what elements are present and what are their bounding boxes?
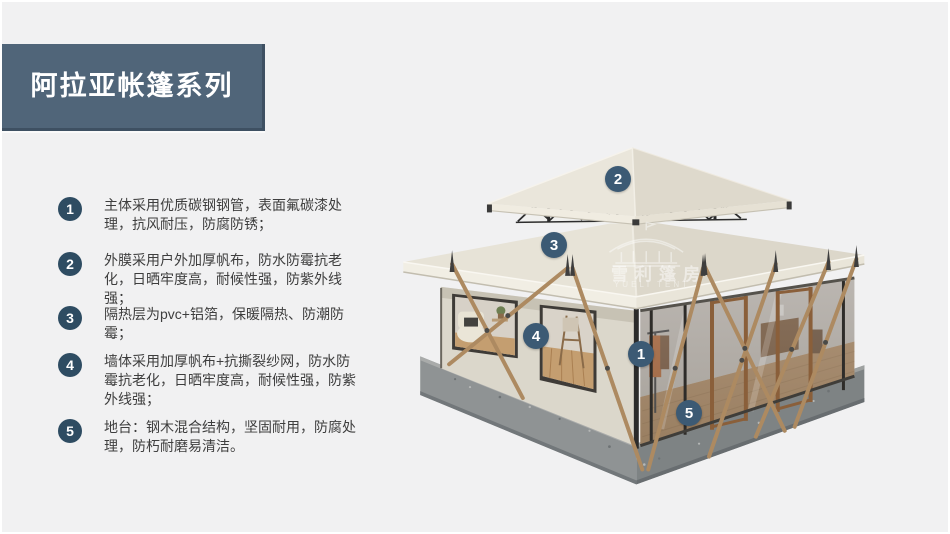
callout-badge-1: 1 [628, 341, 654, 367]
slide: 阿拉亚帐篷系列 1 主体采用优质碳钢钢管，表面氟碳漆处理，抗风耐压，防腐防锈； … [0, 0, 950, 534]
callout-badge-2: 2 [605, 166, 631, 192]
callout-badge-4: 4 [523, 323, 549, 349]
callout-badge-3: 3 [541, 232, 567, 258]
upper-roof [487, 148, 792, 225]
tent-illustration: 雪利篷房 YUELI TENT [2, 2, 948, 532]
callout-badge-5: 5 [676, 400, 702, 426]
